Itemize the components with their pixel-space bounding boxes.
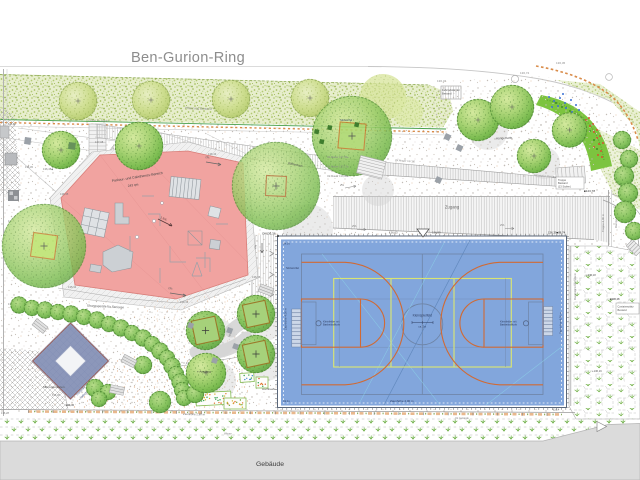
svg-text:135,36: 135,36 (52, 393, 60, 397)
svg-text:Ok Gelände: Ok Gelände (455, 416, 469, 420)
svg-text:136,28: 136,28 (1, 411, 9, 415)
svg-text:136,43: 136,43 (208, 152, 217, 156)
svg-text:135,44: 135,44 (68, 285, 77, 289)
svg-text:136,45: 136,45 (25, 165, 33, 169)
svg-text:Wiese: Wiese (224, 432, 232, 436)
svg-text:136,45: 136,45 (60, 192, 69, 196)
svg-text:+ Ausgang: + Ausgang (197, 370, 211, 374)
svg-text:■123,78: ■123,78 (584, 189, 595, 193)
svg-text:2%: 2% (352, 224, 357, 228)
svg-text:Zufahrt für Spieler: Zufahrt für Spieler (88, 118, 109, 123)
svg-text:Zaunhöhe 4,00 m: Zaunhöhe 4,00 m (390, 399, 414, 403)
svg-text:136,46: 136,46 (8, 122, 16, 126)
svg-text:Zaunhöhe 4,00 m: Zaunhöhe 4,00 m (284, 307, 288, 330)
svg-text:■136,28: ■136,28 (610, 297, 620, 301)
svg-text:2%: 2% (500, 223, 505, 227)
svg-text:136,45◆: 136,45◆ (43, 167, 54, 171)
svg-text:136,99: 136,99 (432, 231, 441, 235)
svg-text:Uk 1v: Uk 1v (283, 399, 291, 403)
svg-text:Ok Mauer 137,45●: Ok Mauer 137,45● (327, 155, 349, 159)
svg-text:+136,16: +136,16 (592, 369, 602, 373)
svg-text:Treppe 4,00 m: Treppe 4,00 m (601, 213, 605, 232)
svg-text:116,4: 116,4 (553, 408, 560, 412)
svg-text:Uk 1v: Uk 1v (283, 242, 291, 246)
svg-text:2%: 2% (340, 183, 345, 187)
svg-text:137,08: 137,08 (95, 140, 104, 144)
svg-text:136,36: 136,36 (252, 275, 261, 279)
svg-text:Basketballkorb: Basketballkorb (323, 323, 341, 327)
svg-text:Kleinspielfeld: Kleinspielfeld (413, 314, 433, 318)
svg-text:Zugang: Zugang (445, 205, 460, 210)
svg-text:Sitzwürfel: Sitzwürfel (286, 266, 299, 270)
svg-text:136,39■88,74: 136,39■88,74 (548, 231, 566, 235)
svg-text:136,74: 136,74 (520, 71, 530, 75)
svg-text:Ok Mauer 137,17●: Ok Mauer 137,17● (327, 165, 349, 169)
svg-text:136,45: 136,45 (556, 61, 566, 65)
svg-text:Mikrostandorten: Mikrostandorten (43, 385, 65, 389)
svg-text:Hochbeete: Hochbeete (262, 387, 276, 391)
svg-text:Zaunhöhe 4,00 m: Zaunhöhe 4,00 m (559, 311, 563, 334)
svg-text:Rasenkammersystem: Rasenkammersystem (573, 272, 577, 300)
svg-text:+136,18: +136,18 (586, 273, 596, 277)
svg-text:ca. 2m: ca. 2m (418, 325, 426, 329)
svg-text:Gebäude: Gebäude (256, 461, 284, 468)
svg-text:(13 Stufen): (13 Stufen) (558, 184, 571, 188)
svg-text:Ok Mauer 136,90●: Ok Mauer 136,90● (327, 174, 349, 178)
svg-text:Ben-Gurion-Ring: Ben-Gurion-Ring (131, 50, 245, 66)
svg-text:Zaunhöhe 2,80 m: Zaunhöhe 2,80 m (183, 412, 206, 416)
svg-text:OK136,36: OK136,36 (262, 232, 276, 236)
svg-text:Sitzwürfel: Sitzwürfel (340, 118, 353, 122)
svg-text:■36,30: ■36,30 (66, 403, 75, 407)
svg-text:136,63: 136,63 (389, 231, 398, 235)
svg-text:Basketballkorb: Basketballkorb (500, 323, 518, 327)
svg-text:Bestand: Bestand (618, 309, 628, 312)
